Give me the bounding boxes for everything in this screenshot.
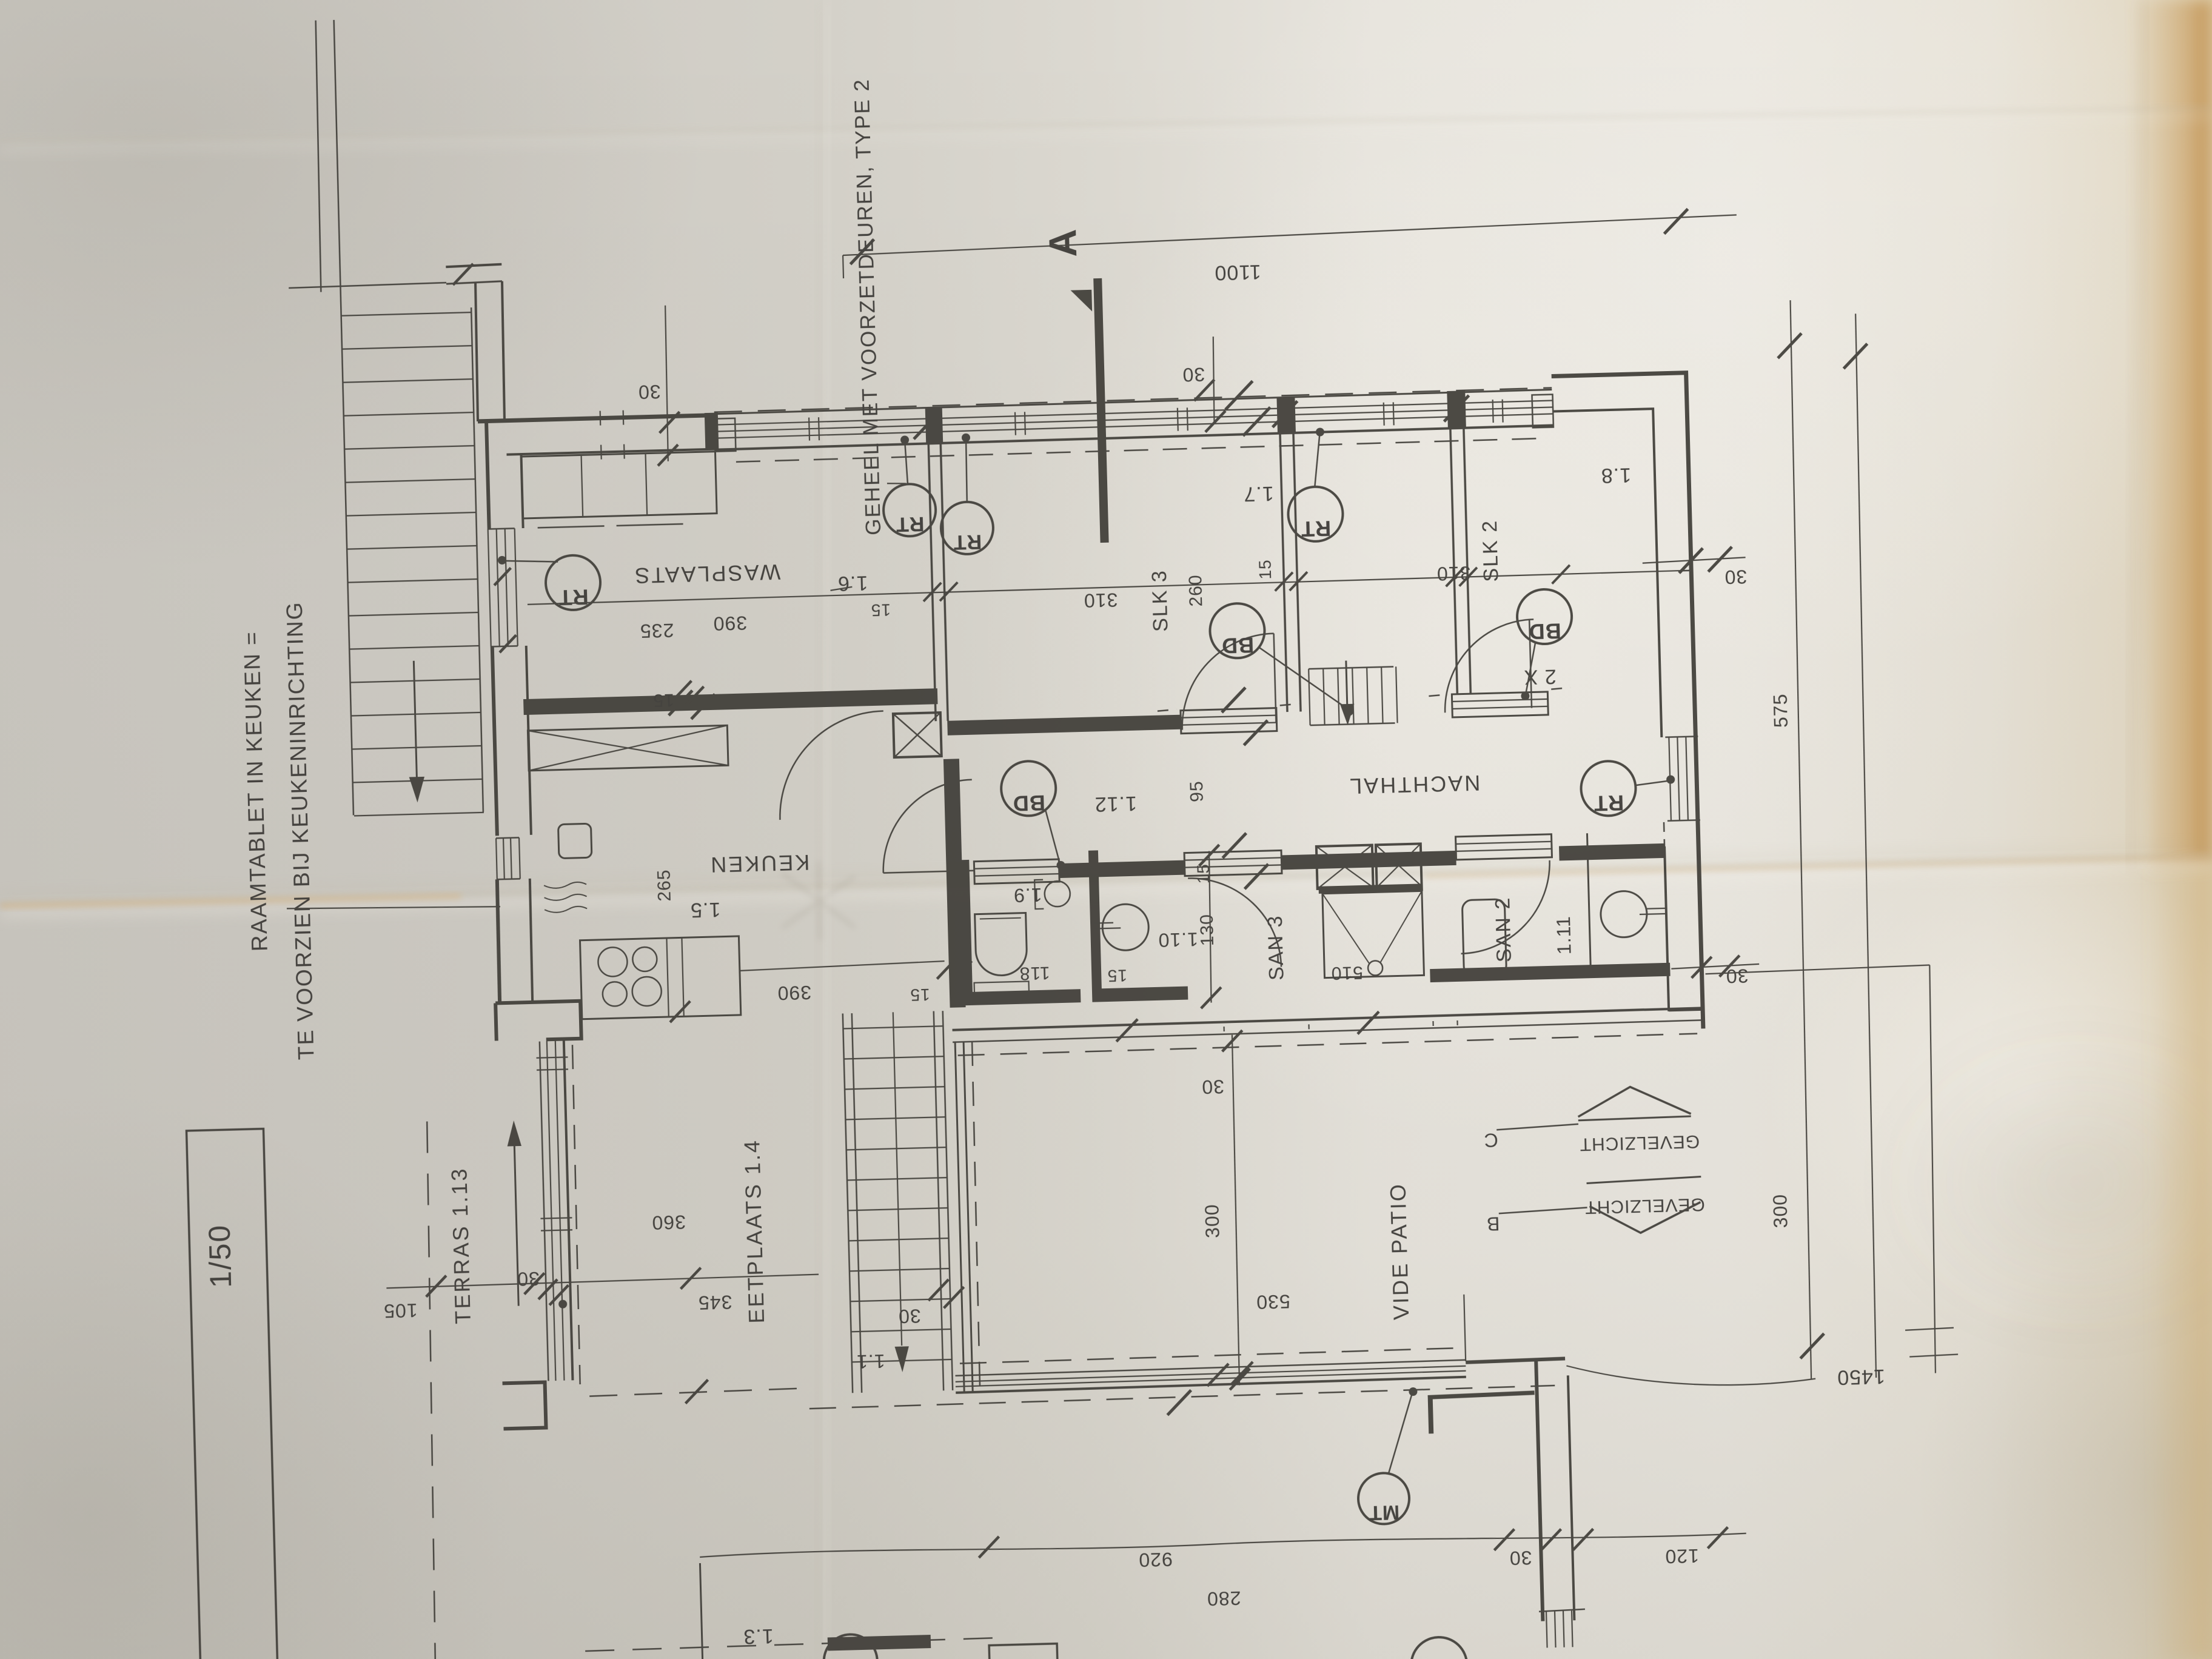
svg-text:1100: 1100 [1214,260,1261,284]
svg-text:1.9: 1.9 [1013,884,1042,907]
svg-text:RT: RT [896,512,925,536]
svg-text:C: C [1483,1129,1498,1151]
svg-text:1.5: 1.5 [690,898,721,922]
svg-text:GEVELZICHT: GEVELZICHT [1579,1131,1700,1155]
svg-text:EETPLAATS 1.4: EETPLAATS 1.4 [739,1139,769,1324]
svg-text:345: 345 [698,1291,732,1313]
svg-text:SLK 3: SLK 3 [1148,569,1173,632]
svg-text:310: 310 [1436,562,1470,585]
svg-text:RT: RT [953,530,982,554]
svg-text:SLK 2: SLK 2 [1478,519,1503,582]
svg-text:VIDE PATIO: VIDE PATIO [1385,1182,1413,1321]
svg-text:1.3: 1.3 [743,1624,774,1648]
svg-text:120: 120 [1664,1545,1699,1567]
svg-text:360: 360 [651,1211,686,1233]
svg-text:265: 265 [654,869,674,902]
svg-text:575: 575 [1769,693,1792,728]
svg-text:105: 105 [383,1299,418,1322]
svg-text:1.1: 1.1 [856,1350,885,1373]
svg-text:NACHTHAL: NACHTHAL [1348,771,1481,799]
svg-text:30: 30 [1725,965,1749,987]
svg-text:SAN 3: SAN 3 [1264,914,1289,980]
svg-text:280: 280 [1207,1587,1241,1610]
svg-text:30: 30 [638,381,662,403]
svg-text:1450: 1450 [1837,1365,1886,1389]
svg-text:BD: BD [1012,791,1045,816]
svg-text:30: 30 [1509,1547,1532,1569]
svg-text:390: 390 [777,982,811,1004]
svg-text:1.10: 1.10 [1158,928,1198,951]
svg-text:95: 95 [1187,780,1207,802]
svg-text:30: 30 [1201,1076,1225,1098]
svg-text:MT: MT [1369,1501,1400,1524]
svg-text:RT: RT [1301,516,1332,541]
svg-text:920: 920 [1138,1549,1173,1571]
svg-text:15: 15 [910,985,930,1005]
svg-text:300: 300 [1769,1193,1791,1228]
svg-text:1.7: 1.7 [1243,482,1274,506]
svg-text:300: 300 [1201,1204,1223,1238]
svg-text:RT: RT [558,585,589,610]
svg-text:130: 130 [1197,914,1218,947]
svg-text:15: 15 [1255,559,1275,580]
svg-text:BD: BD [1221,633,1255,659]
svg-text:TERRAS 1.13: TERRAS 1.13 [446,1167,475,1324]
svg-text:530: 530 [1256,1290,1290,1313]
svg-text:1.12: 1.12 [1094,792,1137,816]
svg-text:310: 310 [1083,589,1118,611]
svg-text:390: 390 [712,612,747,634]
svg-text:BD: BD [1528,618,1561,644]
svg-text:30: 30 [1182,363,1205,386]
svg-text:B: B [1486,1213,1500,1235]
svg-text:15: 15 [652,690,674,711]
svg-text:1.8: 1.8 [1600,463,1631,487]
svg-text:118: 118 [1019,963,1050,984]
svg-text:WASPLAATS: WASPLAATS [633,560,781,588]
svg-text:15: 15 [1107,966,1127,985]
svg-text:30: 30 [1724,566,1748,588]
svg-text:260: 260 [1185,574,1206,607]
svg-text:1/50: 1/50 [203,1224,238,1289]
svg-text:235: 235 [640,620,674,642]
svg-text:15: 15 [870,600,891,620]
svg-text:30: 30 [898,1305,922,1327]
svg-text:30: 30 [517,1268,540,1290]
svg-text:1.11: 1.11 [1552,916,1575,955]
svg-text:1.6: 1.6 [837,571,868,595]
svg-text:RT: RT [1594,791,1624,816]
svg-text:A: A [1041,228,1085,258]
svg-text:KEUKEN: KEUKEN [709,850,810,877]
svg-text:510: 510 [1330,962,1363,983]
